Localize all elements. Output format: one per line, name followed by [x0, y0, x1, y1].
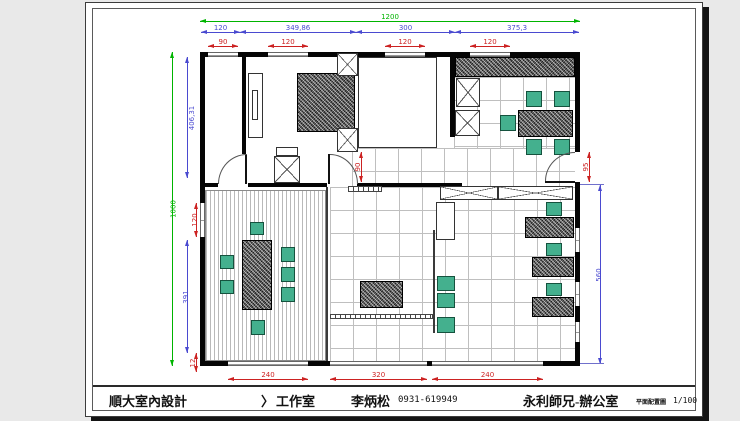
window-bottom-3: [432, 361, 543, 366]
wall-mid-a: [200, 183, 218, 187]
office-cabinet-2: [455, 110, 480, 136]
desk-3: [532, 297, 574, 317]
partition-desk: [436, 202, 455, 240]
wardrobe-handle: [252, 90, 258, 120]
wall-closet-divider: [242, 52, 246, 154]
dim-entry-door: 95: [589, 152, 590, 182]
wall-right: [575, 52, 580, 366]
chair: [526, 91, 542, 107]
chair: [546, 202, 562, 216]
window-bottom-2: [330, 361, 427, 366]
low-cabinet-2: [498, 186, 573, 200]
dim-left-seg-1: 406,31: [187, 57, 188, 178]
door-leaf-entry: [545, 181, 575, 183]
chair: [437, 293, 455, 308]
dim-left-overall: 1000: [172, 52, 173, 366]
chair: [281, 287, 295, 302]
chair: [250, 222, 264, 235]
dim-window-3: 120: [385, 46, 425, 47]
dim-bedroom-door: 90: [361, 152, 362, 182]
hall-partition: [433, 230, 435, 333]
nightstand-top: [337, 53, 358, 76]
window-top-1: [208, 52, 238, 57]
chair: [554, 91, 570, 107]
window-right-3: [575, 322, 580, 342]
rail-shelf-bottom: [330, 314, 433, 319]
dim-right-segment: 560: [600, 185, 601, 364]
chair: [220, 280, 234, 294]
dim-extension-line: [580, 184, 604, 185]
dim-left-seg-2: 391: [187, 240, 188, 353]
tatami-platform: [358, 57, 437, 148]
chair: [546, 243, 562, 256]
dim-extension-line: [580, 363, 604, 364]
nightstand-bottom: [337, 128, 358, 152]
desk-1: [525, 217, 574, 238]
rail-shelf-top: [348, 186, 382, 192]
office-counter: [455, 57, 575, 77]
bed: [297, 73, 355, 132]
dim-bottom-3: 240: [432, 379, 543, 380]
window-right-2: [575, 282, 580, 306]
meeting-room-partition: [326, 187, 328, 361]
wall-mid-b: [248, 183, 327, 187]
meeting-table: [242, 240, 272, 310]
dim-top-seg-2: 349,86: [240, 32, 356, 33]
floor-plan: 1200 120 349,86 300 375,3 90 120 120 120…: [0, 0, 740, 421]
desk-2: [532, 257, 574, 277]
low-cabinet-1: [440, 186, 498, 200]
dim-top-seg-1: 120: [201, 32, 240, 33]
dim-left-window: 120: [196, 203, 197, 237]
dim-top-seg-3: 300: [356, 32, 455, 33]
chair: [251, 320, 265, 335]
chair: [281, 247, 295, 262]
window-bottom-1: [228, 361, 308, 366]
dim-top-seg-4: 375,3: [455, 32, 579, 33]
dim-window-1: 90: [208, 46, 238, 47]
dim-top-overall: 1200: [200, 21, 580, 22]
office-cabinet-1: [456, 78, 480, 107]
chair: [546, 283, 562, 296]
window-right-1: [575, 228, 580, 252]
chair: [500, 115, 516, 131]
chair: [526, 139, 542, 155]
chair: [281, 267, 295, 282]
window-left: [200, 203, 205, 237]
dim-left-small: 12: [196, 353, 197, 372]
office-table: [518, 110, 573, 137]
entry-door-opening: [575, 152, 580, 182]
window-top-2: [268, 52, 308, 57]
dim-window-2: 120: [268, 46, 308, 47]
hall-table: [360, 281, 403, 308]
chair: [437, 317, 455, 333]
dim-window-4: 120: [470, 46, 510, 47]
chair: [220, 255, 234, 269]
tv-shelf: [276, 147, 298, 156]
chair: [437, 276, 455, 291]
tv-cabinet: [274, 156, 300, 183]
dim-bottom-2: 320: [330, 379, 427, 380]
door-swing-closet: [218, 154, 247, 184]
dim-bottom-1: 240: [228, 379, 308, 380]
